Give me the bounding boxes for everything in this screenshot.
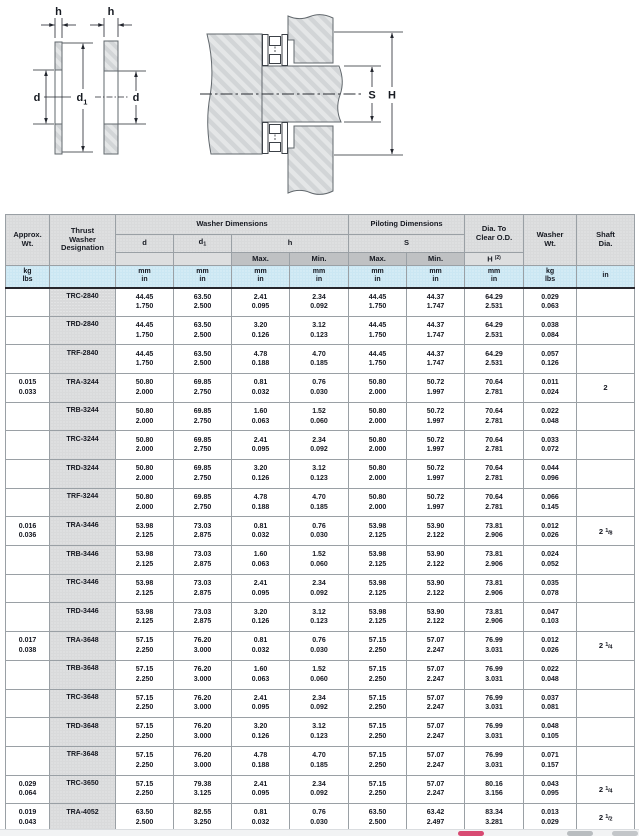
- s-min-cell: 57.072.247: [407, 718, 465, 747]
- col-subheader-H: H (2): [465, 253, 524, 266]
- thrust-washer-top-left: [263, 35, 269, 66]
- d1-cell: 69.852.750: [174, 402, 232, 431]
- roller-bottom: [270, 125, 281, 134]
- s-min-cell: 50.721.997: [407, 402, 465, 431]
- housing-upper-section: [288, 15, 333, 63]
- H-cell: 76.993.031: [465, 746, 524, 775]
- designation-cell: TRD-3648: [50, 718, 116, 747]
- d-cell: 57.152.250: [116, 660, 174, 689]
- designation-cell: TRC-3446: [50, 574, 116, 603]
- d-cell: 53.982.125: [116, 517, 174, 546]
- washer-wt-cell: 0.0440.096: [524, 460, 577, 489]
- h-max-cell: 1.600.063: [232, 546, 290, 575]
- footer-pill-grey[interactable]: [567, 831, 593, 836]
- d-cell: 53.982.125: [116, 603, 174, 632]
- catalog-page: h h d d1 d: [0, 0, 639, 836]
- H-cell: 76.993.031: [465, 632, 524, 661]
- designation-cell: TRF-2840: [50, 345, 116, 374]
- roller-top: [270, 37, 281, 46]
- approx-wt-cell: 0.0160.036: [6, 517, 50, 546]
- s-max-cell: 57.152.250: [349, 660, 407, 689]
- s-max-cell: 53.982.125: [349, 546, 407, 575]
- H-cell: 64.292.531: [465, 345, 524, 374]
- h-max-cell: 4.780.188: [232, 345, 290, 374]
- shaft-dia-cell: [577, 574, 635, 603]
- d-cell: 44.451.750: [116, 316, 174, 345]
- H-cell: 80.163.156: [465, 775, 524, 804]
- designation-cell: TRB-3648: [50, 660, 116, 689]
- s-min-cell: 50.721.997: [407, 488, 465, 517]
- shaft-dia-cell: [577, 288, 635, 317]
- d1-cell: 76.203.000: [174, 632, 232, 661]
- H-cell: 76.993.031: [465, 718, 524, 747]
- s-max-cell: 50.802.000: [349, 374, 407, 403]
- washer-wt-cell: 0.0330.072: [524, 431, 577, 460]
- s-max-cell: 53.982.125: [349, 574, 407, 603]
- washer-wt-cell: 0.0430.095: [524, 775, 577, 804]
- h-min-cell: 3.120.123: [290, 316, 349, 345]
- washer-wt-cell: 0.0120.026: [524, 632, 577, 661]
- table-row: 0.0160.036TRA-344653.982.12573.032.8750.…: [6, 517, 635, 546]
- unit-cell: mm in: [407, 266, 465, 288]
- h-max-cell: 0.810.032: [232, 632, 290, 661]
- col-header-approx-wt: Approx. Wt.: [6, 215, 50, 266]
- unit-cell: mm in: [232, 266, 290, 288]
- washer-wt-cell: 0.0380.084: [524, 316, 577, 345]
- s-max-cell: 57.152.250: [349, 632, 407, 661]
- s-min-cell: 44.371.747: [407, 316, 465, 345]
- H-cell: 64.292.531: [465, 316, 524, 345]
- table-row: TRC-324450.802.00069.852.7502.410.0952.3…: [6, 431, 635, 460]
- col-header-h: h: [232, 235, 349, 253]
- table-row: TRF-284044.451.75063.502.5004.780.1884.7…: [6, 345, 635, 374]
- dim-label-h-left: h: [55, 6, 62, 18]
- d1-cell: 73.032.875: [174, 574, 232, 603]
- approx-wt-cell: [6, 488, 50, 517]
- H-cell: 73.812.906: [465, 517, 524, 546]
- s-min-cell: 57.072.247: [407, 660, 465, 689]
- shaft-dia-cell: [577, 431, 635, 460]
- approx-wt-cell: [6, 460, 50, 489]
- dim-label-d-right: d: [133, 92, 140, 104]
- footer-pill-accent[interactable]: [458, 831, 484, 836]
- thrust-washer-spec-table: Approx. Wt. Thrust Washer Designation Wa…: [5, 214, 635, 833]
- shaft-dia-cell: 2 1/8: [577, 517, 635, 546]
- h-max-cell: 1.600.063: [232, 402, 290, 431]
- approx-wt-cell: [6, 345, 50, 374]
- h-max-cell: 2.410.095: [232, 288, 290, 317]
- h-max-cell: 2.410.095: [232, 689, 290, 718]
- d-cell: 50.802.000: [116, 374, 174, 403]
- h-max-cell: 2.410.095: [232, 431, 290, 460]
- s-max-cell: 53.982.125: [349, 603, 407, 632]
- table-row: TRB-344653.982.12573.032.8751.600.0631.5…: [6, 546, 635, 575]
- d1-cell: 73.032.875: [174, 603, 232, 632]
- shaft-dia-cell: 2 1/4: [577, 775, 635, 804]
- washer-wt-cell: 0.0480.105: [524, 718, 577, 747]
- s-min-cell: 44.371.747: [407, 288, 465, 317]
- washer-wt-cell: 0.0220.048: [524, 402, 577, 431]
- H-cell: 64.292.531: [465, 288, 524, 317]
- H-cell: 70.642.781: [465, 402, 524, 431]
- bottom-strip: [0, 829, 639, 836]
- h-min-cell: 0.760.030: [290, 374, 349, 403]
- washer-wt-cell: 0.0350.078: [524, 574, 577, 603]
- designation-cell: TRF-3648: [50, 746, 116, 775]
- s-max-cell: 44.451.750: [349, 316, 407, 345]
- d1-cell: 63.502.500: [174, 345, 232, 374]
- approx-wt-cell: [6, 316, 50, 345]
- approx-wt-cell: [6, 603, 50, 632]
- h-max-cell: 3.200.126: [232, 460, 290, 489]
- d-cell: 53.982.125: [116, 546, 174, 575]
- H-cell: 73.812.906: [465, 574, 524, 603]
- h-min-cell: 0.760.030: [290, 517, 349, 546]
- s-min-cell: 57.072.247: [407, 632, 465, 661]
- d-cell: 50.802.000: [116, 431, 174, 460]
- table-row: 0.0170.038TRA-364857.152.25076.203.0000.…: [6, 632, 635, 661]
- approx-wt-cell: [6, 718, 50, 747]
- col-header-s: S: [349, 235, 465, 253]
- washer-dimensions-diagram: h h d d1 d: [25, 4, 200, 199]
- table-row: 0.0150.033TRA-324450.802.00069.852.7500.…: [6, 374, 635, 403]
- d1-cell: 69.852.750: [174, 431, 232, 460]
- designation-cell: TRC-3244: [50, 431, 116, 460]
- h-min-cell: 1.520.060: [290, 402, 349, 431]
- approx-wt-cell: [6, 746, 50, 775]
- H-cell: 73.812.906: [465, 546, 524, 575]
- H-cell: 70.642.781: [465, 431, 524, 460]
- designation-cell: TRC-2840: [50, 288, 116, 317]
- table-row: TRF-324450.802.00069.852.7504.780.1884.7…: [6, 488, 635, 517]
- s-min-cell: 57.072.247: [407, 775, 465, 804]
- col-group-washer-dimensions: Washer Dimensions: [116, 215, 349, 235]
- d1-cell: 69.852.750: [174, 374, 232, 403]
- washer-wt-cell: 0.0290.063: [524, 288, 577, 317]
- h-max-cell: 3.200.126: [232, 603, 290, 632]
- housing-lower-section: [288, 126, 333, 194]
- d-cell: 57.152.250: [116, 775, 174, 804]
- washer-wt-cell: 0.0120.026: [524, 517, 577, 546]
- table-row: TRD-284044.451.75063.502.5003.200.1263.1…: [6, 316, 635, 345]
- s-min-cell: 53.902.122: [407, 517, 465, 546]
- designation-cell: TRD-2840: [50, 316, 116, 345]
- s-min-cell: 53.902.122: [407, 546, 465, 575]
- approx-wt-cell: [6, 546, 50, 575]
- d-cell: 53.982.125: [116, 574, 174, 603]
- shaft-dia-cell: [577, 746, 635, 775]
- dim-label-H: H: [388, 90, 396, 102]
- unit-cell: mm in: [290, 266, 349, 288]
- s-min-cell: 50.721.997: [407, 460, 465, 489]
- table-row: TRF-364857.152.25076.203.0004.780.1884.7…: [6, 746, 635, 775]
- dim-label-d-left: d: [34, 92, 41, 104]
- thrust-washer-bottom-right: [282, 123, 288, 154]
- h-min-cell: 2.340.092: [290, 775, 349, 804]
- h-max-cell: 2.410.095: [232, 574, 290, 603]
- col-subheader-s-min: Min.: [407, 253, 465, 266]
- washer-wt-cell: 0.0660.145: [524, 488, 577, 517]
- approx-wt-cell: 0.0290.064: [6, 775, 50, 804]
- unit-cell: mm in: [465, 266, 524, 288]
- s-min-cell: 44.371.747: [407, 345, 465, 374]
- d1-cell: 76.203.000: [174, 689, 232, 718]
- approx-wt-cell: [6, 574, 50, 603]
- d1-cell: 76.203.000: [174, 660, 232, 689]
- h-max-cell: 0.810.032: [232, 374, 290, 403]
- h-min-cell: 3.120.123: [290, 718, 349, 747]
- d-cell: 44.451.750: [116, 288, 174, 317]
- table-row: TRB-324450.802.00069.852.7501.600.0631.5…: [6, 402, 635, 431]
- d1-cell: 69.852.750: [174, 460, 232, 489]
- d-cell: 44.451.750: [116, 345, 174, 374]
- h-min-cell: 2.340.092: [290, 288, 349, 317]
- washer-wt-cell: 0.0470.103: [524, 603, 577, 632]
- designation-cell: TRD-3244: [50, 460, 116, 489]
- thrust-washer-bottom-left: [263, 123, 269, 154]
- s-max-cell: 50.802.000: [349, 460, 407, 489]
- unit-cell: mm in: [116, 266, 174, 288]
- unit-cell: mm in: [174, 266, 232, 288]
- col-header-shaft-dia: Shaft Dia.: [577, 215, 635, 266]
- s-max-cell: 57.152.250: [349, 689, 407, 718]
- col-header-d: d: [116, 235, 174, 253]
- washer-wt-cell: 0.0710.157: [524, 746, 577, 775]
- h-max-cell: 2.410.095: [232, 775, 290, 804]
- col-subheader-h-max: Max.: [232, 253, 290, 266]
- d1-cell: 63.502.500: [174, 316, 232, 345]
- shaft-dia-cell: [577, 718, 635, 747]
- d-cell: 50.802.000: [116, 488, 174, 517]
- H-cell: 76.993.031: [465, 660, 524, 689]
- s-max-cell: 50.802.000: [349, 402, 407, 431]
- roller-bottom-2: [270, 143, 281, 152]
- designation-cell: TRB-3446: [50, 546, 116, 575]
- designation-cell: TRC-3648: [50, 689, 116, 718]
- table-row: TRD-364857.152.25076.203.0003.200.1263.1…: [6, 718, 635, 747]
- h-max-cell: 3.200.126: [232, 316, 290, 345]
- table-row: TRD-344653.982.12573.032.8753.200.1263.1…: [6, 603, 635, 632]
- d1-cell: 73.032.875: [174, 517, 232, 546]
- table-row: TRC-364857.152.25076.203.0002.410.0952.3…: [6, 689, 635, 718]
- h-min-cell: 4.700.185: [290, 345, 349, 374]
- s-min-cell: 50.721.997: [407, 431, 465, 460]
- designation-cell: TRC-3650: [50, 775, 116, 804]
- thrust-washer-top-right: [282, 35, 288, 66]
- table-row: 0.0290.064TRC-365057.152.25079.383.1252.…: [6, 775, 635, 804]
- approx-wt-cell: [6, 402, 50, 431]
- unit-cell: kg lbs: [524, 266, 577, 288]
- col-subheader-blank-d: [116, 253, 174, 266]
- roller-top-2: [270, 55, 281, 64]
- shaft-dia-cell: [577, 660, 635, 689]
- d1-cell: 76.203.000: [174, 746, 232, 775]
- shaft-dia-cell: [577, 488, 635, 517]
- s-min-cell: 53.902.122: [407, 603, 465, 632]
- h-min-cell: 2.340.092: [290, 689, 349, 718]
- table-row: TRD-324450.802.00069.852.7503.200.1263.1…: [6, 460, 635, 489]
- col-group-piloting-dimensions: Piloting Dimensions: [349, 215, 465, 235]
- shaft-dia-cell: [577, 603, 635, 632]
- table-row: TRB-364857.152.25076.203.0001.600.0631.5…: [6, 660, 635, 689]
- s-max-cell: 53.982.125: [349, 517, 407, 546]
- H-cell: 76.993.031: [465, 689, 524, 718]
- d-cell: 57.152.250: [116, 632, 174, 661]
- approx-wt-cell: [6, 660, 50, 689]
- washer-wt-cell: 0.0570.126: [524, 345, 577, 374]
- unit-cell: [50, 266, 116, 288]
- approx-wt-cell: [6, 431, 50, 460]
- table-row: TRC-284044.451.75063.502.5002.410.0952.3…: [6, 288, 635, 317]
- approx-wt-cell: [6, 288, 50, 317]
- s-max-cell: 50.802.000: [349, 488, 407, 517]
- washer-wt-cell: 0.0220.048: [524, 660, 577, 689]
- approx-wt-cell: [6, 689, 50, 718]
- h-min-cell: 1.520.060: [290, 546, 349, 575]
- bearing-assembly-diagram: S H: [200, 0, 445, 205]
- approx-wt-cell: 0.0170.038: [6, 632, 50, 661]
- s-max-cell: 57.152.250: [349, 775, 407, 804]
- d1-cell: 69.852.750: [174, 488, 232, 517]
- h-max-cell: 1.600.063: [232, 660, 290, 689]
- h-min-cell: 1.520.060: [290, 660, 349, 689]
- shaft-dia-cell: 2 1/4: [577, 632, 635, 661]
- s-max-cell: 44.451.750: [349, 288, 407, 317]
- dim-label-d1: d1: [77, 92, 88, 107]
- col-header-dia-to-clear: Dia. To Clear O.D.: [465, 215, 524, 253]
- units-row: kg lbs mm in mm in mm in mm in mm in mm …: [6, 266, 635, 288]
- s-min-cell: 50.721.997: [407, 374, 465, 403]
- designation-cell: TRB-3244: [50, 402, 116, 431]
- s-max-cell: 44.451.750: [349, 345, 407, 374]
- s-max-cell: 50.802.000: [349, 431, 407, 460]
- designation-cell: TRD-3446: [50, 603, 116, 632]
- approx-wt-cell: 0.0150.033: [6, 374, 50, 403]
- shaft-dia-cell: [577, 316, 635, 345]
- h-max-cell: 3.200.126: [232, 718, 290, 747]
- h-min-cell: 0.760.030: [290, 632, 349, 661]
- h-min-cell: 3.120.123: [290, 460, 349, 489]
- d1-cell: 63.502.500: [174, 288, 232, 317]
- footer-pill-grey-2[interactable]: [612, 831, 638, 836]
- h-min-cell: 3.120.123: [290, 603, 349, 632]
- s-max-cell: 57.152.250: [349, 746, 407, 775]
- s-min-cell: 57.072.247: [407, 689, 465, 718]
- col-subheader-s-max: Max.: [349, 253, 407, 266]
- table-row: TRC-344653.982.12573.032.8752.410.0952.3…: [6, 574, 635, 603]
- shaft-dia-cell: [577, 546, 635, 575]
- h-min-cell: 2.340.092: [290, 431, 349, 460]
- d1-cell: 73.032.875: [174, 546, 232, 575]
- H-cell: 73.812.906: [465, 603, 524, 632]
- s-min-cell: 53.902.122: [407, 574, 465, 603]
- col-subheader-blank-d1: [174, 253, 232, 266]
- H-cell: 70.642.781: [465, 488, 524, 517]
- dim-label-h-right: h: [108, 6, 115, 18]
- H-cell: 70.642.781: [465, 460, 524, 489]
- washer-wt-cell: 0.0370.081: [524, 689, 577, 718]
- h-max-cell: 4.780.188: [232, 746, 290, 775]
- shaft-dia-cell: [577, 460, 635, 489]
- d1-cell: 76.203.000: [174, 718, 232, 747]
- unit-cell: kg lbs: [6, 266, 50, 288]
- designation-cell: TRA-3244: [50, 374, 116, 403]
- designation-cell: TRA-3446: [50, 517, 116, 546]
- d-cell: 57.152.250: [116, 746, 174, 775]
- unit-cell: mm in: [349, 266, 407, 288]
- s-min-cell: 57.072.247: [407, 746, 465, 775]
- h-max-cell: 4.780.188: [232, 488, 290, 517]
- d-cell: 57.152.250: [116, 689, 174, 718]
- designation-cell: TRA-3648: [50, 632, 116, 661]
- d-cell: 50.802.000: [116, 460, 174, 489]
- s-max-cell: 57.152.250: [349, 718, 407, 747]
- shaft-dia-cell: [577, 402, 635, 431]
- col-subheader-h-min: Min.: [290, 253, 349, 266]
- d-cell: 57.152.250: [116, 718, 174, 747]
- col-header-d1: d1: [174, 235, 232, 253]
- shaft-dia-cell: [577, 345, 635, 374]
- shaft-dia-cell: [577, 689, 635, 718]
- washer-wt-cell: 0.0240.052: [524, 546, 577, 575]
- d1-cell: 79.383.125: [174, 775, 232, 804]
- h-max-cell: 0.810.032: [232, 517, 290, 546]
- dim-label-s: S: [368, 90, 375, 102]
- col-header-washer-wt: Washer Wt.: [524, 215, 577, 266]
- d-cell: 50.802.000: [116, 402, 174, 431]
- shaft-dia-cell: 2: [577, 374, 635, 403]
- h-min-cell: 4.700.185: [290, 488, 349, 517]
- col-header-designation: Thrust Washer Designation: [50, 215, 116, 266]
- washer-wt-cell: 0.0110.024: [524, 374, 577, 403]
- unit-cell: in: [577, 266, 635, 288]
- designation-cell: TRF-3244: [50, 488, 116, 517]
- H-cell: 70.642.781: [465, 374, 524, 403]
- h-min-cell: 4.700.185: [290, 746, 349, 775]
- h-min-cell: 2.340.092: [290, 574, 349, 603]
